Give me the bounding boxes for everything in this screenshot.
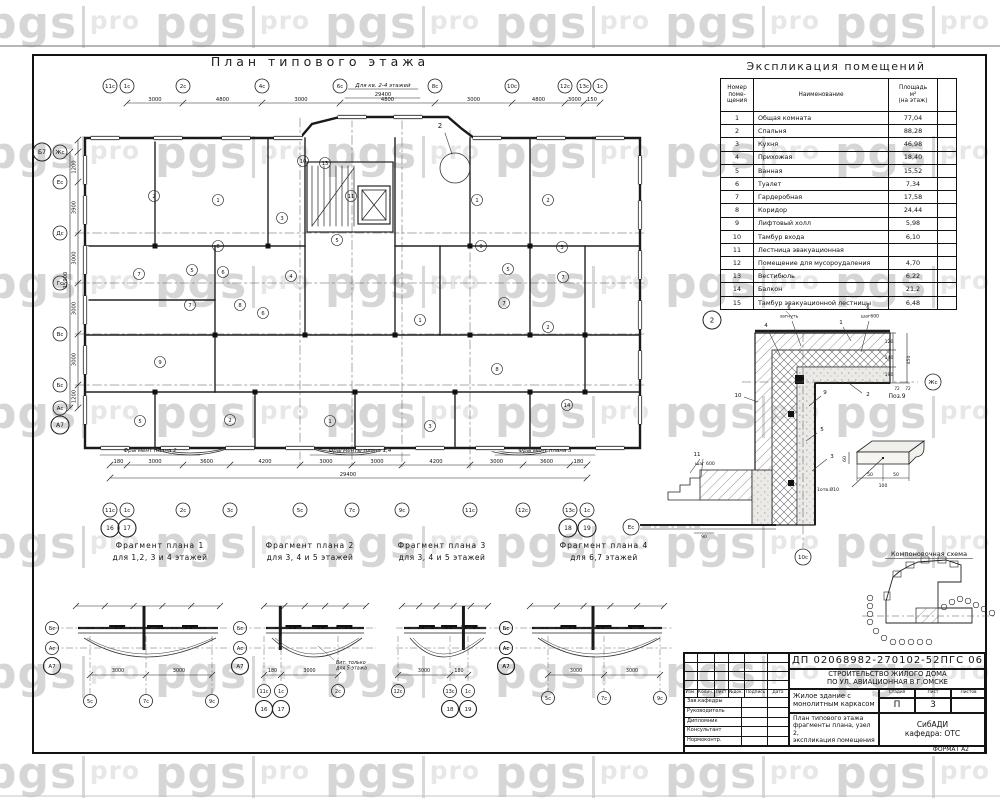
signature-row-label: Руководитель	[684, 707, 741, 717]
dim-label: 1200	[72, 390, 78, 403]
room-no-cell: 3	[721, 138, 754, 151]
drawing-sheet: { "watermark": {"bold":"pgs","light":"pr…	[0, 0, 1000, 800]
scheme-axis-circle	[926, 639, 932, 645]
axis-label: 11с	[259, 689, 268, 695]
explication-title: Экспликация помещений	[726, 60, 946, 73]
room-number: 6	[221, 270, 224, 276]
axis-label: Дс	[56, 231, 63, 237]
stage-value: П	[879, 698, 915, 713]
node2-n11: 11	[694, 452, 701, 458]
drawing-shape	[537, 135, 565, 142]
drawing-shape	[275, 638, 359, 654]
axis-label: 1с	[597, 84, 604, 90]
axis-label: 1с	[124, 508, 131, 514]
room-number: 1	[216, 198, 219, 204]
drawing-shape: Вит. только	[336, 660, 366, 666]
drawing-shape	[419, 625, 435, 629]
empty-cell	[938, 125, 957, 138]
node2-n4: 4	[764, 323, 768, 329]
organization: СибАДИ кафедра: ОТС	[879, 713, 986, 746]
scheme-axis-circle	[867, 611, 873, 617]
node2-note_step: шаг600	[861, 314, 879, 320]
columns	[153, 244, 588, 395]
scheme-axis-circle	[941, 604, 947, 610]
column-mark	[153, 390, 158, 395]
table-row: 7Гардеробная17,58	[721, 191, 957, 204]
axis-label: 7с	[143, 699, 149, 705]
fragment-subtitle: для 6,7 этажей	[570, 553, 638, 562]
fragment-subtitle: для 3, 4 и 5 этажей	[399, 553, 486, 562]
table-row: 9Лифтовый холл5,98	[721, 217, 957, 230]
drawing-shape	[82, 346, 89, 374]
drawing-shape	[109, 625, 125, 629]
main-plan: 11с1с2с4с6с8с10с12с13с1с3000480030004800…	[33, 79, 645, 537]
axis-label: 1с	[278, 689, 284, 695]
plan-note: Для кв. 2-4 этажей	[354, 83, 411, 89]
axis-label: 7с	[601, 696, 607, 702]
dim-label: 3000	[294, 97, 307, 103]
col-header-name: Наименование	[754, 79, 889, 112]
node2-n1: 1	[839, 320, 843, 326]
column-mark	[153, 244, 158, 249]
scheme-axis-circle	[917, 639, 923, 645]
stage-label: Стадия	[879, 689, 915, 698]
sheet-label: Лист	[915, 689, 951, 698]
scheme-axis-circle	[949, 599, 955, 605]
dim-label: 3900	[72, 201, 78, 214]
room-no-cell: 12	[721, 257, 754, 270]
room-number: 3	[280, 216, 283, 222]
drawing-shape	[91, 135, 119, 142]
empty-cell	[938, 151, 957, 164]
axis-label: 11с	[105, 84, 115, 90]
node2-n9: 9	[823, 390, 827, 396]
axis-label: А7	[236, 664, 244, 670]
table-row: 3Кухня46,98	[721, 138, 957, 151]
sheet-number: 3	[915, 698, 951, 713]
project-name: СТРОИТЕЛЬСТВО ЖИЛОГО ДОМА ПО УЛ. АВИАЦИО…	[789, 669, 986, 689]
scheme-axis-circle	[867, 595, 873, 601]
axis-label: 5с	[87, 699, 93, 705]
dim-label: 4800	[216, 97, 229, 103]
scheme-axis-circle	[989, 610, 995, 616]
room-number: 2	[546, 198, 549, 204]
empty-cell	[938, 270, 957, 283]
room-area-cell: 7,34	[889, 177, 938, 190]
room-area-cell: 6,48	[889, 296, 938, 309]
axis-label: Ас	[503, 646, 509, 652]
sheets-total	[951, 698, 986, 713]
room-no-cell: 9	[721, 217, 754, 230]
col-header-area: Площадь м² (на этаж)	[889, 79, 938, 112]
room-name-cell: Лестница эвакуационная	[754, 243, 889, 256]
axis-label: 11с	[105, 508, 115, 514]
axis-label: А7	[56, 422, 64, 429]
axis-label: 17	[123, 525, 131, 532]
room-no-cell: 7	[721, 191, 754, 204]
scheme-axis-circle	[965, 598, 971, 604]
axis-label: Ес	[57, 180, 64, 186]
room-number: 14	[564, 403, 571, 409]
node2-steps	[640, 470, 776, 533]
axis-label: 1с	[584, 508, 591, 514]
axis-label: 12с	[560, 84, 570, 90]
column-mark	[528, 333, 533, 338]
room-name-cell: Ванная	[754, 164, 889, 177]
dim-label: 3000	[370, 459, 383, 465]
drawing-shape	[560, 625, 576, 629]
node2-n10: 10	[735, 393, 742, 399]
drawing-shape: для 5 этажа	[335, 666, 367, 672]
dim-label: 3000	[490, 459, 503, 465]
fragment-title: Фрагмент плана 3	[398, 541, 487, 550]
scheme-axis-circle	[867, 603, 873, 609]
room-area-cell: 17,58	[889, 191, 938, 204]
dim-label: 3000	[626, 668, 638, 674]
axis-label: 9с	[657, 696, 663, 702]
fragment-subtitle: для 3, 4 и 5 этажей	[267, 553, 354, 562]
room-number: 2	[228, 418, 231, 424]
drawing-shape	[413, 638, 481, 654]
fragment-subtitle: для 1,2, 3 и 4 этажей	[113, 553, 208, 562]
axis-label: 18	[564, 525, 572, 532]
room-name-cell: Балкон	[754, 283, 889, 296]
axis-label: Жс	[56, 150, 65, 156]
dim-label: 1200	[72, 160, 78, 173]
node2-detail: 246загнуть16шаг60021095311шаг 6001201401…	[623, 305, 941, 565]
axis-label: 9с	[209, 699, 215, 705]
fragment-note: Вит. толькодля 5 этажа	[335, 660, 367, 672]
node2-pos9_note: 1отв.Ø10	[817, 486, 839, 493]
room-number: 5	[138, 419, 141, 425]
room-name-cell: Спальня	[754, 125, 889, 138]
axis-label: 5с	[545, 696, 551, 702]
room-area-cell: 4,70	[889, 257, 938, 270]
drawing-shape	[274, 135, 302, 142]
drawing-shape	[637, 251, 644, 279]
room-name-cell: Тамбур входа	[754, 230, 889, 243]
axis-label: Бс	[503, 626, 509, 632]
room-number: 1	[475, 198, 478, 204]
room-no-cell: 14	[721, 283, 754, 296]
room-number: 2	[546, 325, 549, 331]
dim-label: 4200	[258, 459, 271, 465]
drawing-shape	[182, 625, 198, 629]
title-block: ДП 02068982-270102-52ПГС 06 СТРОИТЕЛЬСТВ…	[683, 652, 985, 753]
node2-p100: 100	[879, 483, 888, 489]
drawing-shape	[637, 301, 644, 329]
drawing-shape	[147, 625, 163, 629]
drawing-shape	[476, 445, 504, 452]
fragment-plan-4: Фрагмент плана 4для 6,7 этажейБсАсА73000…	[498, 541, 675, 705]
room-number: 8	[495, 367, 498, 373]
dim-label: 3000	[112, 668, 124, 674]
scheme-axis-circle	[873, 628, 879, 634]
drawing-shape	[336, 625, 352, 629]
drawing-shape	[222, 135, 250, 142]
room-number: 7	[502, 301, 505, 307]
axis-label: 13с	[445, 689, 454, 695]
axis-label: 16	[106, 525, 114, 532]
col-header-extra	[938, 79, 957, 112]
axis-label: 13с	[579, 84, 589, 90]
detail-callout-label: 2	[438, 122, 442, 130]
fragment-ref: Фрагмент плана 3	[518, 448, 572, 454]
room-no-cell: 2	[721, 125, 754, 138]
room-number: 3	[560, 245, 563, 251]
fragment-ref: Фрагменты плана 1,4	[329, 448, 392, 454]
node2-d72b: 72	[905, 386, 911, 391]
dim-label: 3000	[72, 302, 78, 315]
drawing-shape	[637, 201, 644, 229]
node2-note_bend: загнуть	[780, 315, 799, 320]
scheme-axis-circle	[973, 602, 979, 608]
room-area-cell: 6,10	[889, 230, 938, 243]
detail-callout-circle	[440, 153, 470, 183]
node2-d72a: 72	[894, 386, 900, 391]
dim-label: 3000	[72, 251, 78, 264]
dim-label: 3000	[418, 668, 430, 674]
node2-note_step2: шаг 600	[695, 461, 715, 467]
table-row: 11Лестница эвакуационная	[721, 243, 957, 256]
axis-label: 1с	[465, 689, 471, 695]
room-no-cell: 11	[721, 243, 754, 256]
grid-col-header: Подпись	[744, 689, 767, 697]
axis-label: 19	[583, 525, 591, 532]
column-mark	[528, 390, 533, 395]
room-area-cell: 15,52	[889, 164, 938, 177]
column-mark	[393, 333, 398, 338]
table-row: 14Балкон21,2	[721, 283, 957, 296]
column-mark	[583, 333, 588, 338]
room-number: 2	[152, 194, 155, 200]
dim-label: 29400	[340, 472, 357, 478]
axis-label: 10с	[507, 84, 517, 90]
drawing-shape	[637, 156, 644, 184]
room-name-cell: Общая комната	[754, 112, 889, 125]
room-name-cell: Лифтовый холл	[754, 217, 889, 230]
table-row: 5Ванная15,52	[721, 164, 957, 177]
axis-label: 2с	[180, 508, 187, 514]
dim-label: 4800	[532, 97, 545, 103]
fragment-title: Фрагмент плана 4	[560, 541, 649, 550]
room-name-cell: Прихожая	[754, 151, 889, 164]
room-no-cell: 5	[721, 164, 754, 177]
signature-row-label: Нормоконтр.	[684, 736, 741, 746]
table-row: 13Вестибюль6,22	[721, 270, 957, 283]
empty-cell	[938, 164, 957, 177]
node2-n3: 3	[830, 454, 834, 460]
grid-col-header: Колич.	[697, 689, 714, 697]
room-number: 9	[479, 244, 482, 250]
empty-cell	[938, 283, 957, 296]
dim-label: 3600	[200, 459, 213, 465]
column-mark	[528, 244, 533, 249]
dim-label: 60	[842, 456, 848, 462]
signature-row-label: Дипломник	[684, 717, 741, 727]
fragment-title: Фрагмент плана 1	[116, 541, 205, 550]
node2-callout-label: 2	[710, 317, 714, 325]
axis-label: 11с	[465, 508, 475, 514]
axis-label: Вс	[57, 332, 64, 338]
room-number: 11	[348, 194, 355, 200]
drawing-shape	[596, 445, 624, 452]
dim-label: 4200	[429, 459, 442, 465]
drawing-shape	[82, 156, 89, 184]
plan-title: План типового этажа	[170, 54, 470, 69]
drawing-shape	[312, 625, 328, 629]
column-mark	[453, 390, 458, 395]
room-number: 13	[322, 161, 329, 167]
drawing-shape	[416, 445, 444, 452]
col-header-number: Номер поме- щения	[721, 79, 754, 112]
axis-label: Бс	[237, 626, 243, 632]
dim-label: 3000	[173, 668, 185, 674]
axis-label: 6с	[337, 84, 344, 90]
scheme-axis-circle	[957, 596, 963, 602]
column-mark	[266, 244, 271, 249]
room-number: 5	[190, 268, 193, 274]
dim-label: 3000	[148, 459, 161, 465]
room-number: 6	[261, 311, 264, 317]
signature-row-label: Консультант	[684, 726, 741, 736]
format-label: ФОРМАТ А2	[684, 746, 986, 754]
drawing-shape	[441, 625, 457, 629]
room-no-cell: 4	[721, 151, 754, 164]
room-name-cell: Помещение для мусороудаления	[754, 257, 889, 270]
node2-d190: 190	[885, 372, 894, 378]
table-row: 4Прихожая18,40	[721, 151, 957, 164]
room-number: 4	[289, 274, 293, 280]
axis-label: 9с	[399, 508, 406, 514]
scheme-axis-circle	[881, 635, 887, 641]
dim-label: 450	[906, 356, 912, 365]
dim-label: 180	[574, 459, 584, 465]
empty-cell	[938, 204, 957, 217]
drawing-shape	[394, 114, 422, 121]
axis-label: 2с	[335, 689, 341, 695]
dim-label: 180	[114, 459, 124, 465]
empty-cell	[938, 230, 957, 243]
fragment-title: Фрагмент плана 2	[266, 541, 355, 550]
room-number: 5	[506, 267, 509, 273]
room-area-cell	[889, 243, 938, 256]
axis-label: 1с	[124, 84, 131, 90]
drawing-shape	[596, 135, 624, 142]
column-mark	[353, 390, 358, 395]
axis-label: Ас	[237, 646, 243, 652]
dim-label: 180	[454, 668, 463, 674]
axis-label: 16	[261, 707, 268, 713]
node2-d120: 120	[885, 339, 894, 345]
node2-n2: 2	[866, 392, 870, 398]
empty-cell	[938, 138, 957, 151]
grid-col-header: Изм.	[684, 689, 697, 697]
axis-label: Ес	[628, 525, 635, 531]
room-area-cell: 18,40	[889, 151, 938, 164]
sheets-label: Листов	[951, 689, 986, 698]
axis-label: 2с	[180, 84, 187, 90]
dim-label: 3000	[568, 97, 581, 103]
drawing-shape	[82, 196, 89, 224]
drawing-shape	[473, 135, 501, 142]
grid-col-header: №док.	[728, 689, 744, 697]
drawing-shape	[338, 114, 366, 121]
drawing-shape	[541, 638, 657, 654]
drawing-shape	[628, 625, 644, 629]
room-no-cell: 10	[721, 230, 754, 243]
doc-number: ДП 02068982-270102-52ПГС 06	[789, 653, 986, 669]
windows	[82, 114, 644, 452]
drawing-shape	[82, 396, 89, 424]
room-no-cell: 15	[721, 296, 754, 309]
empty-cell	[938, 257, 957, 270]
node2-n5: 5	[820, 427, 824, 433]
dim-label: 3000	[319, 459, 332, 465]
table-row: 2Спальня88,28	[721, 125, 957, 138]
room-number: 7	[188, 303, 191, 309]
drawing-shape	[285, 625, 301, 629]
column-mark	[253, 390, 258, 395]
axis-label: Бс	[57, 383, 64, 389]
room-number: 1	[328, 419, 331, 425]
empty-cell	[938, 217, 957, 230]
axis-label: 19	[465, 707, 472, 713]
room-no-cell: 1	[721, 112, 754, 125]
exterior-wall	[85, 117, 640, 448]
fragment-plan-1: Фрагмент плана 1для 1,2, 3 и 4 этажейБсА…	[44, 541, 231, 708]
axis-label: 4с	[259, 84, 266, 90]
room-name-cell: Кухня	[754, 138, 889, 151]
room-name-cell: Гардеробная	[754, 191, 889, 204]
axis-label: 12с	[518, 508, 528, 514]
column-mark	[468, 244, 473, 249]
drawing-shape	[226, 445, 254, 452]
room-name-cell: Вестибюль	[754, 270, 889, 283]
fragment-ref: Фрагмент плана 2	[123, 448, 177, 454]
room-name-cell: Туалет	[754, 177, 889, 190]
room-area-cell: 24,44	[889, 204, 938, 217]
table-row: 10Тамбур входа6,10	[721, 230, 957, 243]
room-no-cell: 6	[721, 177, 754, 190]
drawing-shape	[87, 638, 213, 654]
dim-label: 15900	[63, 272, 69, 289]
room-no-cell: 13	[721, 270, 754, 283]
room-no-cell: 8	[721, 204, 754, 217]
dim-label: 3000	[570, 668, 582, 674]
axis-label: 10с	[798, 555, 808, 561]
dim-label: 150	[587, 97, 597, 103]
room-name-cell: Коридор	[754, 204, 889, 217]
empty-cell	[938, 112, 957, 125]
axis-label: Ас	[57, 406, 64, 412]
dim-label: 3000	[467, 97, 480, 103]
room-number: 8	[238, 303, 241, 309]
object-name: Жилое здание с монолитным каркасом	[789, 689, 879, 713]
room-area-cell: 5,98	[889, 217, 938, 230]
grid-col-header: Лист	[714, 689, 728, 697]
room-area-cell: 88,28	[889, 125, 938, 138]
empty-cell	[938, 296, 957, 309]
drawing-shape	[154, 135, 182, 142]
scheme-title: Компоновочная схема	[891, 550, 967, 558]
pos9-detail	[849, 441, 924, 487]
sheet-content-title: План типового этажа фрагменты плана, узе…	[789, 713, 879, 746]
room-number: 3	[428, 424, 431, 430]
table-row: 15Тамбур эвакуационной лестницы6,48	[721, 296, 957, 309]
node2-pos9_title: Поз.9	[888, 393, 905, 400]
axis-label: 3с	[227, 508, 234, 514]
